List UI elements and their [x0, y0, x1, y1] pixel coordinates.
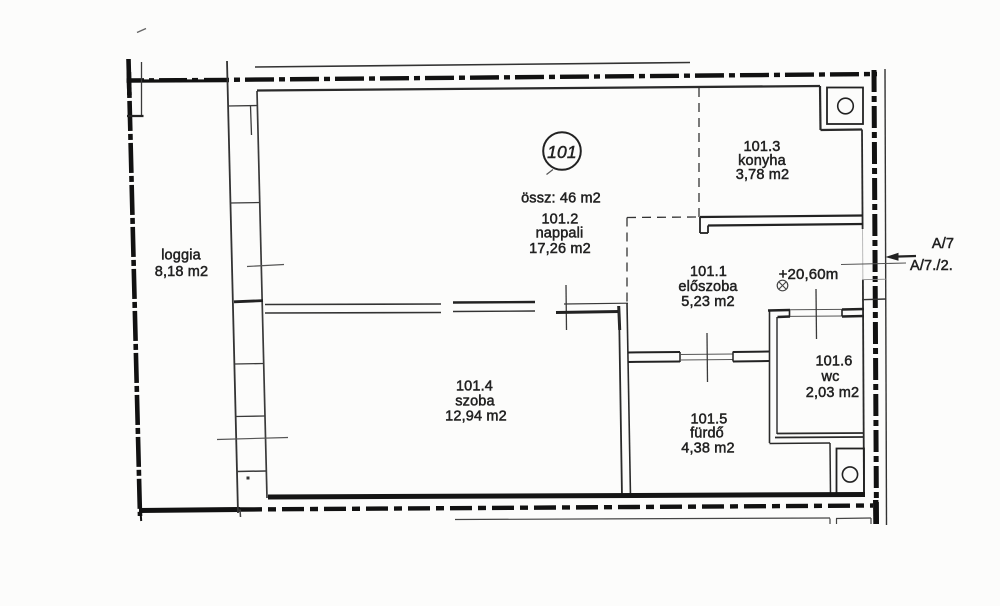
svg-text:17,26 m2: 17,26 m2 [529, 241, 591, 257]
svg-text:5,23 m2: 5,23 m2 [681, 294, 734, 310]
svg-text:nappali: nappali [536, 226, 584, 242]
svg-text:2,03 m2: 2,03 m2 [806, 385, 859, 401]
svg-text:12,94 m2: 12,94 m2 [445, 409, 507, 425]
svg-text:szoba: szoba [455, 394, 495, 410]
svg-text:101.1: 101.1 [690, 264, 727, 280]
svg-text:loggia: loggia [161, 248, 201, 264]
svg-text:wc: wc [820, 369, 839, 385]
svg-text:101.6: 101.6 [815, 354, 852, 370]
svg-text:8,18 m2: 8,18 m2 [155, 264, 208, 280]
svg-text:fürdő: fürdő [690, 426, 724, 442]
svg-text:előszoba: előszoba [678, 279, 738, 295]
svg-text:össz: 46 m2: össz: 46 m2 [521, 191, 601, 207]
svg-text:101.4: 101.4 [456, 379, 493, 395]
svg-text:A/7./2.: A/7./2. [910, 258, 953, 274]
svg-text:3,78 m2: 3,78 m2 [736, 167, 789, 183]
svg-text:101: 101 [547, 142, 577, 162]
svg-text:4,38 m2: 4,38 m2 [681, 441, 734, 457]
svg-text:A/7: A/7 [932, 236, 954, 252]
svg-text:+20,60m: +20,60m [779, 266, 839, 283]
